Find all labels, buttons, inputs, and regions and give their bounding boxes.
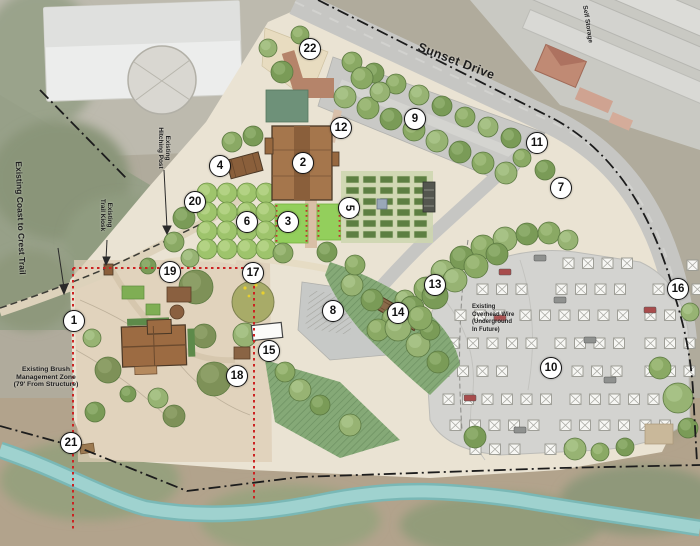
callout-10: 10: [540, 357, 562, 379]
callout-number: 12: [335, 122, 348, 134]
callout-number: 8: [330, 305, 336, 317]
callout-17: 17: [242, 262, 264, 284]
callout-number: 15: [263, 345, 276, 357]
callout-number: 7: [558, 182, 564, 194]
overhead-wire-label-line4: In Future): [472, 327, 514, 335]
callout-16: 16: [667, 278, 689, 300]
callout-7: 7: [550, 177, 572, 199]
callout-9: 9: [404, 108, 426, 130]
callout-number: 19: [164, 266, 177, 278]
callout-21: 21: [60, 432, 82, 454]
callout-22: 22: [299, 38, 321, 60]
site-plan-drawing: [0, 0, 700, 546]
callout-number: 16: [672, 283, 685, 295]
callout-number: 17: [247, 267, 260, 279]
garden-center-feature: [377, 199, 387, 209]
overhead-wire-label: Existing Overhead Wire (Underground In F…: [472, 304, 514, 334]
callout-4: 4: [209, 155, 231, 177]
callout-3: 3: [277, 211, 299, 233]
trail-kiosk-label: Existing Trail Kiosk: [99, 199, 113, 231]
callout-number: 2: [300, 157, 306, 169]
callout-8: 8: [322, 300, 344, 322]
callout-number: 5: [343, 205, 355, 211]
callout-number: 20: [189, 196, 202, 208]
yard-pad: [645, 424, 673, 444]
callout-6: 6: [236, 211, 258, 233]
hitching-post-label-line1: Existing: [164, 127, 171, 168]
callout-15: 15: [258, 340, 280, 362]
callout-1: 1: [63, 310, 85, 332]
hitching-post-label-line2: Hitching Post: [157, 127, 164, 168]
brush-zone-label: Existing Brush Management Zone (79' From…: [6, 366, 86, 389]
overhead-wire-label-line3: (Underground: [472, 319, 514, 327]
callout-number: 11: [531, 137, 543, 149]
callout-19: 19: [159, 261, 181, 283]
callout-18: 18: [226, 365, 248, 387]
garden-arbor: [423, 182, 435, 212]
callout-14: 14: [387, 302, 409, 324]
callout-number: 22: [304, 43, 317, 55]
brush-zone-label-line3: (79' From Structure): [6, 381, 86, 389]
site-plan-canvas: Sunset Drive Self Storage Existing Coast…: [0, 0, 700, 546]
brush-zone-label-line1: Existing Brush: [6, 366, 86, 374]
callout-11: 11: [526, 132, 548, 154]
callout-number: 9: [412, 113, 418, 125]
trail-kiosk-label-line2: Trail Kiosk: [99, 199, 106, 231]
callout-20: 20: [184, 191, 206, 213]
callout-13: 13: [424, 274, 446, 296]
callout-number: 4: [217, 160, 223, 172]
callout-5: 5: [338, 197, 360, 219]
callout-number: 21: [65, 437, 78, 449]
callout-12: 12: [330, 117, 352, 139]
overhead-wire-label-line1: Existing: [472, 304, 514, 312]
hitching-post-label: Existing Hitching Post: [157, 127, 171, 168]
callout-number: 6: [244, 216, 250, 228]
callout-number: 14: [392, 307, 405, 319]
callout-number: 10: [545, 362, 558, 374]
callout-number: 13: [429, 279, 442, 291]
trail-kiosk-label-line1: Existing: [106, 199, 113, 231]
callout-number: 3: [285, 216, 291, 228]
callout-number: 1: [71, 315, 77, 327]
overhead-wire-label-line2: Overhead Wire: [472, 312, 514, 320]
trail-kiosk: [104, 264, 113, 275]
planted-bed: [266, 90, 308, 122]
callout-number: 18: [231, 370, 244, 382]
callout-2: 2: [292, 152, 314, 174]
